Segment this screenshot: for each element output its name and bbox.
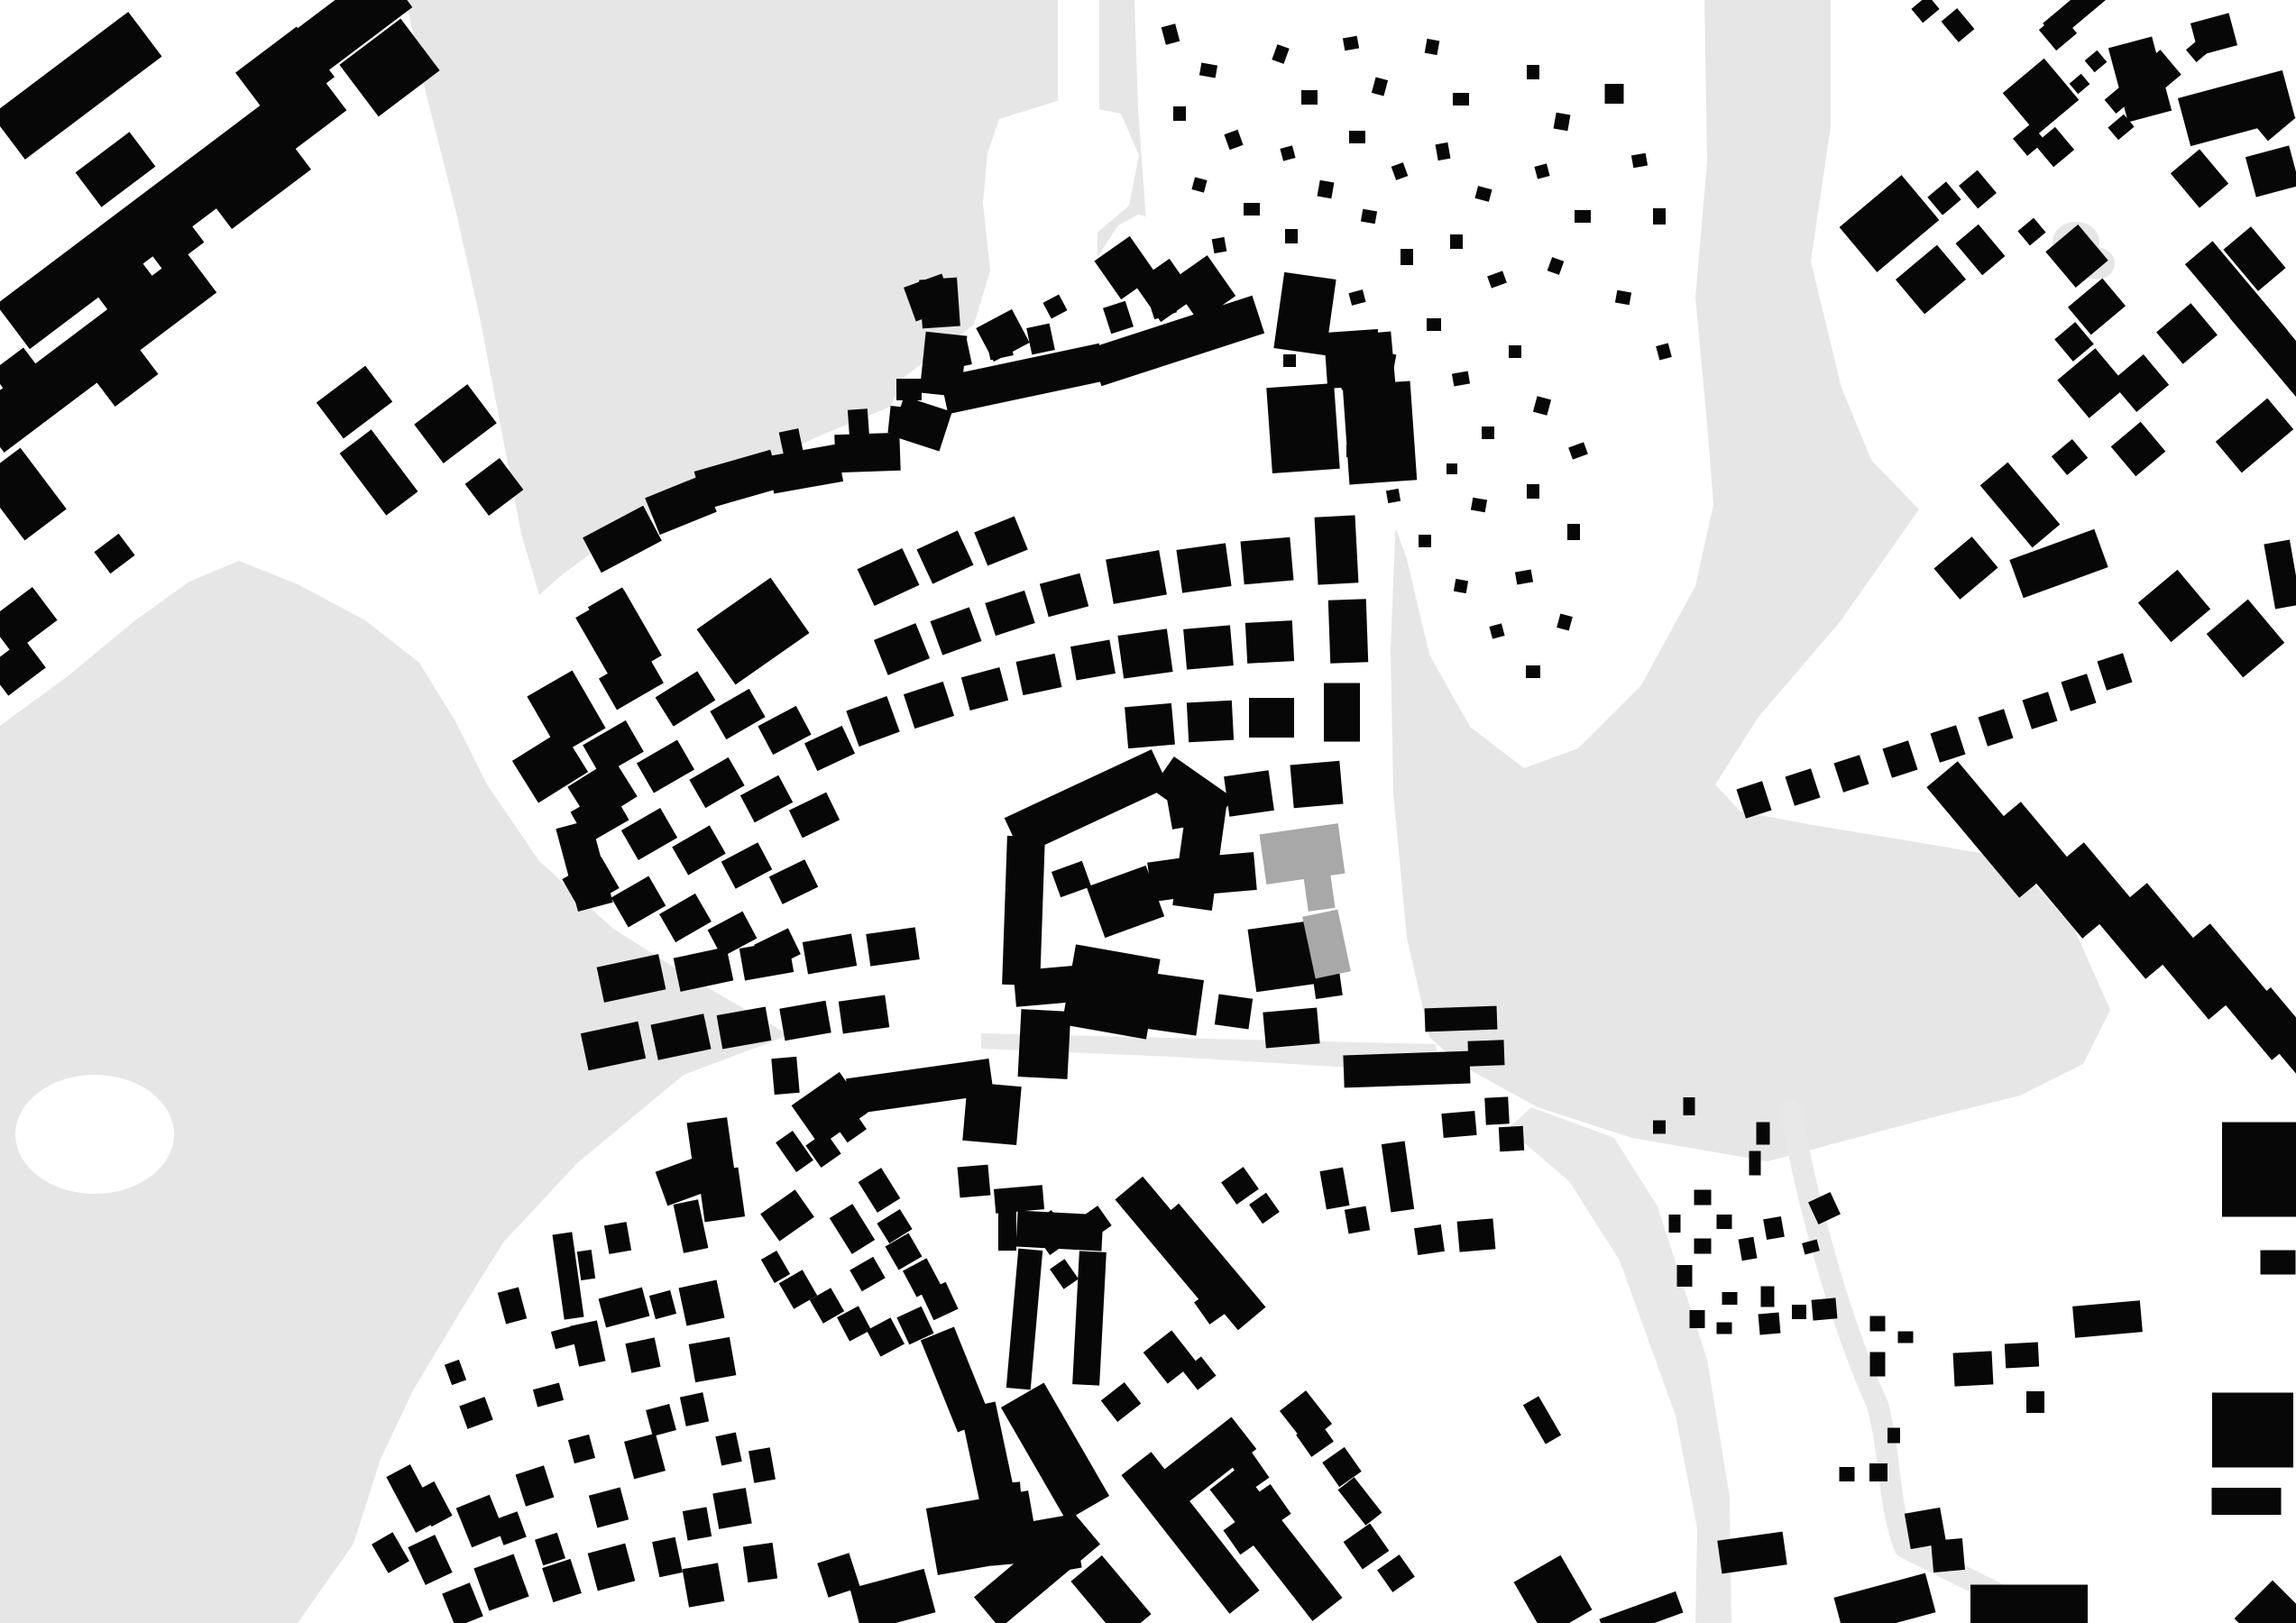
building-footprint (1343, 381, 1417, 485)
building-footprint (1315, 515, 1359, 584)
building-footprint (994, 1185, 1044, 1214)
building-footprint (1953, 1351, 1994, 1386)
building-footprint (1759, 1313, 1781, 1335)
building-footprint (998, 1211, 1016, 1251)
building-footprint (1575, 210, 1591, 223)
building-footprint (1669, 1215, 1681, 1233)
building-footprint (1812, 1297, 1838, 1320)
building-footprint (1554, 113, 1571, 132)
building-footprint (625, 1337, 660, 1372)
building-footprint (1401, 249, 1413, 265)
map-canvas (0, 0, 2296, 1623)
building-footprint (1266, 383, 1339, 473)
building-footprint (1173, 106, 1186, 121)
building-footprint (1427, 318, 1441, 331)
building-footprint (848, 408, 869, 438)
building-footprint (1215, 995, 1253, 1030)
building-footprint (1870, 1316, 1886, 1332)
building-footprint (1361, 209, 1377, 225)
building-footprint (1631, 153, 1648, 169)
building-footprint (1453, 93, 1469, 105)
building-footprint (958, 1165, 991, 1198)
building-footprint (1386, 489, 1401, 503)
building-footprint (712, 1488, 751, 1529)
building-footprint (1285, 229, 1298, 243)
building-footprint (1346, 445, 1359, 457)
building-footprint (1301, 90, 1318, 105)
building-footprint (1070, 639, 1116, 680)
building-footprint (2222, 1123, 2296, 1217)
building-footprint (1887, 1428, 1900, 1444)
building-footprint (1615, 290, 1631, 306)
building-footprint (1690, 1310, 1705, 1328)
building-footprint (1117, 628, 1172, 678)
building-footprint (1425, 1006, 1498, 1032)
building-footprint (1653, 208, 1666, 225)
building-footprint (1018, 1009, 1071, 1079)
building-footprint (1509, 345, 1521, 358)
building-footprint (834, 433, 900, 472)
building-footprint (1757, 1123, 1770, 1145)
building-footprint (1527, 65, 1539, 79)
building-footprint (1677, 1265, 1693, 1287)
building-footprint (1694, 1190, 1712, 1206)
building-footprint (689, 1337, 737, 1382)
building-footprint (1382, 353, 1397, 369)
land-cove-west (15, 1075, 174, 1194)
building-footprint (1328, 599, 1368, 663)
building-footprint (1761, 1287, 1775, 1307)
building-footprint (1187, 701, 1234, 743)
building-footprint (2005, 1343, 2039, 1369)
building-footprint (1401, 418, 1412, 429)
building-footprint (1763, 1216, 1785, 1240)
building-footprint (1970, 1585, 2088, 1623)
building-footprint (1484, 1096, 1510, 1124)
building-footprint (1241, 537, 1294, 585)
building-footprint (1245, 620, 1294, 664)
building-footprint (1283, 354, 1296, 367)
building-footprint (1898, 1332, 1914, 1343)
building-footprint (1717, 1215, 1732, 1229)
building-footprint (1869, 1463, 1887, 1481)
building-footprint (1002, 836, 1045, 986)
building-footprint (687, 1117, 735, 1177)
building-footprint (1419, 535, 1431, 547)
building-footprint (1450, 234, 1463, 249)
building-footprint (1750, 1151, 1761, 1176)
building-footprint (1176, 543, 1231, 592)
building-footprint (771, 1057, 799, 1095)
building-footprint (1134, 971, 1204, 1035)
building-footprint (1792, 1305, 1806, 1319)
building-footprint (1125, 703, 1175, 748)
building-footprint (1446, 463, 1457, 474)
building-footprint (1425, 39, 1440, 55)
building-footprint (683, 1507, 712, 1540)
building-footprint (839, 995, 890, 1034)
building-footprint (1694, 1239, 1712, 1254)
figure-ground-map (0, 0, 2296, 1623)
building-footprint (2212, 1488, 2282, 1515)
building-footprint (1722, 1292, 1738, 1305)
building-footprint (1249, 698, 1294, 738)
building-footprint (1345, 1206, 1370, 1234)
building-footprint (1605, 84, 1624, 104)
building-footprint (1318, 180, 1335, 199)
building-footprint (1441, 1111, 1476, 1138)
building-footprint (1717, 1323, 1732, 1334)
building-footprint (1653, 1121, 1666, 1134)
building-footprint (743, 1543, 777, 1582)
building-footprint (866, 927, 919, 966)
building-footprint (1870, 1352, 1886, 1377)
building-footprint (1343, 1051, 1470, 1088)
building-footprint (2072, 1300, 2143, 1337)
building-footprint (1106, 550, 1167, 604)
building-footprint (2212, 1393, 2293, 1468)
building-footprint (1499, 1126, 1524, 1151)
building-footprint (2261, 1251, 2296, 1275)
building-footprint (1414, 1224, 1445, 1255)
building-footprint (1567, 524, 1580, 540)
building-footprint (2026, 1391, 2044, 1413)
building-footprint (678, 1279, 724, 1325)
building-footprint (1527, 484, 1539, 499)
building-footprint (1349, 131, 1365, 143)
highlighted-building (1304, 874, 1336, 912)
building-footprint (1931, 1538, 1965, 1573)
building-footprint (1263, 1007, 1319, 1048)
building-footprint (896, 379, 922, 400)
building-footprint (1526, 665, 1540, 678)
building-footprint (1454, 579, 1468, 593)
building-footprint (1840, 1467, 1855, 1481)
building-footprint (887, 406, 908, 435)
building-footprint (683, 1563, 725, 1607)
building-footprint (1224, 770, 1274, 817)
building-footprint (1183, 625, 1234, 669)
building-footprint (698, 1168, 745, 1223)
building-footprint (1343, 36, 1359, 51)
building-footprint (1290, 761, 1344, 809)
land-causeway-bridge (1058, 0, 1099, 126)
building-footprint (1482, 426, 1494, 439)
building-footprint (962, 1082, 1021, 1145)
building-footprint (1212, 237, 1227, 253)
building-footprint (1244, 203, 1260, 215)
building-footprint (1684, 1097, 1695, 1115)
building-footprint (1324, 683, 1360, 742)
building-footprint (1468, 1040, 1505, 1066)
building-footprint (1457, 1218, 1496, 1252)
building-footprint (1471, 498, 1487, 513)
